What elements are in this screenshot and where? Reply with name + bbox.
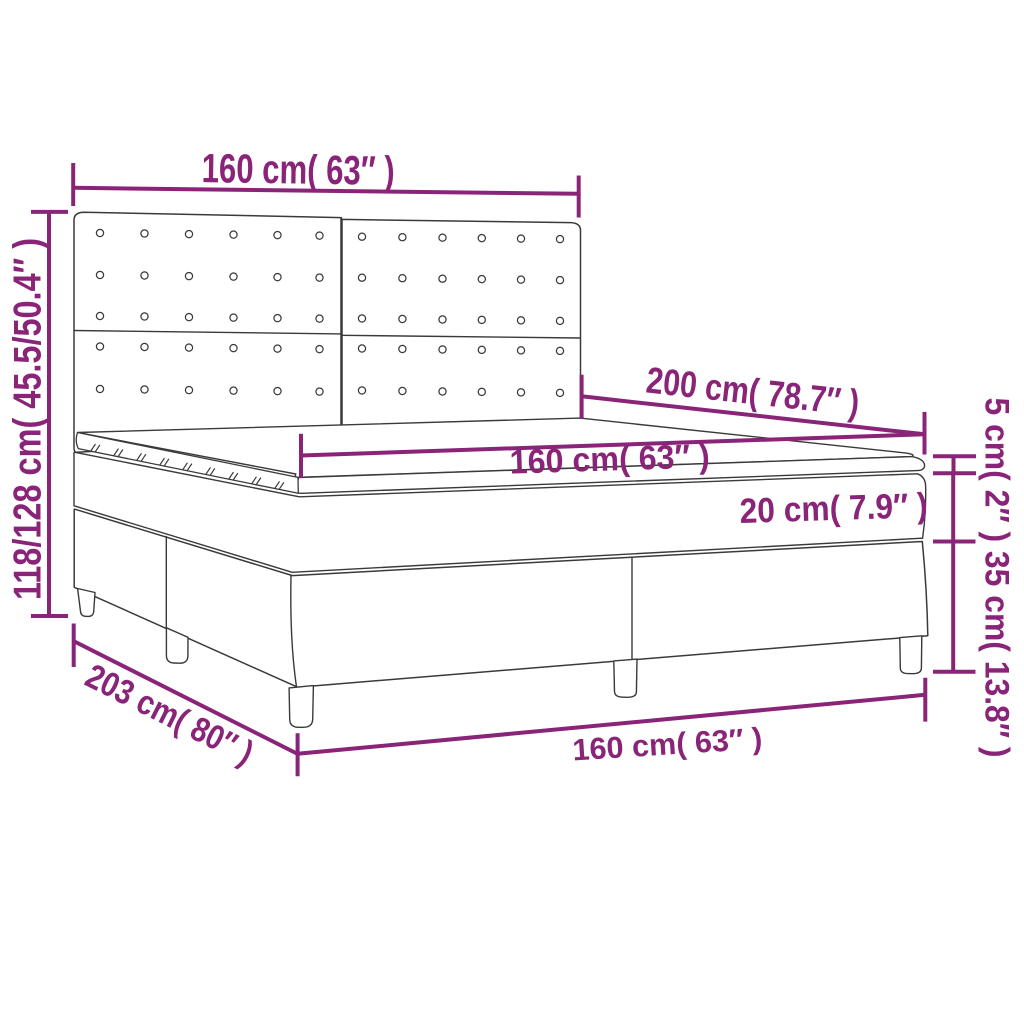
svg-text:160 cm( 63″ ): 160 cm( 63″ ) bbox=[509, 437, 710, 481]
svg-text:20 cm( 7.9″ ): 20 cm( 7.9″ ) bbox=[739, 486, 928, 531]
svg-text:118/128 cm( 45.5/50.4″ ): 118/128 cm( 45.5/50.4″ ) bbox=[7, 238, 50, 600]
svg-text:5 cm( 2″ ) 35 cm( 13.8″ ): 5 cm( 2″ ) 35 cm( 13.8″ ) bbox=[978, 398, 1016, 758]
svg-text:160 cm( 63″ ): 160 cm( 63″ ) bbox=[201, 145, 395, 194]
